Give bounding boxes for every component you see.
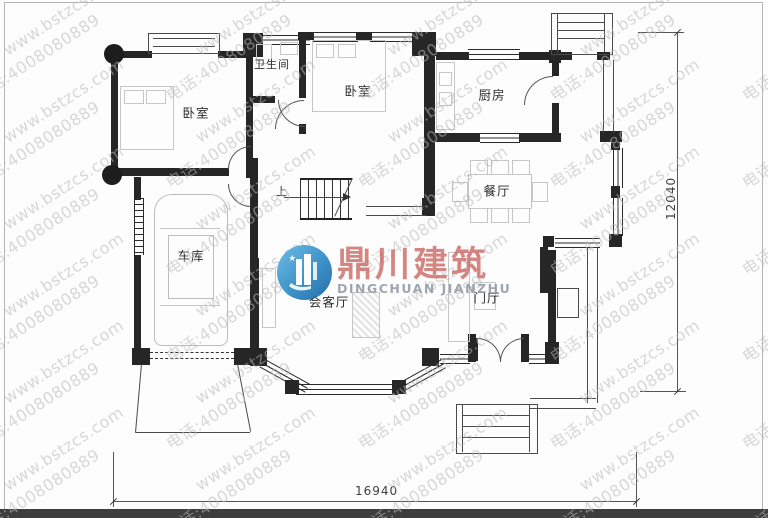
window (529, 354, 547, 364)
room-label-dining-room: 餐厅 (483, 181, 510, 200)
window (613, 148, 623, 188)
driveway-edge (136, 432, 250, 433)
wall-segment (519, 52, 551, 60)
room-label-kitchen: 厨房 (478, 85, 505, 104)
wall-segment (134, 255, 141, 350)
wall-segment (412, 32, 436, 56)
rear-steps-rail (604, 13, 605, 53)
round-column (104, 44, 124, 64)
dimension-value-height: 12040 (664, 180, 678, 220)
entry-step-line (462, 415, 530, 416)
wall-segment (111, 58, 118, 170)
entry-step-line (462, 437, 530, 438)
room-label-bedroom-1: 卧室 (182, 103, 209, 122)
door-swing-arc (500, 338, 524, 362)
floor-plan-image: 上 卧室 卫生间 卧室 厨房 餐厅 车库 会客厅 门厅 16940 12040 … (0, 0, 768, 518)
window (468, 49, 520, 60)
wall-segment (424, 54, 435, 142)
wall-segment (543, 236, 554, 247)
stove (439, 92, 452, 106)
entry-steps-rail (462, 404, 463, 452)
logo-name-chinese: 鼎川建筑 (337, 247, 511, 283)
pillow (146, 90, 166, 104)
wall-segment (545, 342, 559, 364)
chair (512, 208, 530, 223)
rear-step-line (557, 30, 605, 31)
car-windshield-line (160, 228, 220, 229)
stair-landing-edge (366, 206, 426, 216)
company-logo: 鼎川建筑 DINGCHUAN JIANZHU (277, 245, 511, 300)
entry-step-line (462, 426, 530, 427)
room-label-garage: 车库 (177, 246, 204, 265)
dimension-value-width: 16940 (355, 484, 398, 498)
foyer-niche (557, 288, 579, 318)
logo-buildings-icon (277, 245, 332, 300)
chair (470, 160, 488, 175)
bay-window-line (153, 38, 215, 39)
window (480, 133, 520, 143)
wall-segment (552, 60, 559, 76)
rear-step-line (557, 38, 605, 39)
rear-steps-rail (557, 13, 558, 53)
logo-globe-icon (277, 245, 332, 300)
door-swing-arc (228, 146, 251, 169)
thin-wall (603, 60, 614, 133)
dimension-line-bottom (113, 501, 637, 502)
room-label-bedroom-2: 卧室 (344, 81, 371, 100)
logo-text: 鼎川建筑 DINGCHUAN JIANZHU (337, 245, 511, 296)
pillow (338, 44, 356, 58)
entry-steps (456, 404, 538, 454)
terrace-edge (587, 247, 598, 403)
pillow (124, 90, 144, 104)
wall-segment (250, 177, 258, 350)
chair (491, 208, 509, 223)
logo-name-english: DINGCHUAN JIANZHU (337, 281, 511, 296)
bay-window-top (148, 33, 220, 54)
stair-arrow-head (343, 193, 351, 201)
bay-window-line (153, 46, 215, 47)
driveway-edge (135, 364, 142, 433)
door-swing-arc (228, 184, 251, 207)
chair (452, 182, 468, 202)
wall-segment (436, 52, 469, 60)
cabinet (262, 268, 276, 328)
wall-segment (112, 168, 229, 176)
bay-window-diagonal (396, 359, 446, 393)
door-swing-arc (477, 338, 501, 362)
wall-segment (132, 348, 150, 365)
garage-door-dashed (150, 352, 234, 354)
wall-segment (519, 133, 561, 142)
chair (491, 160, 509, 175)
chair (512, 160, 530, 175)
wall-segment (253, 96, 275, 103)
wall-segment (134, 177, 141, 200)
dimension-extension-line (640, 391, 686, 392)
sink (280, 42, 298, 55)
car-rear-line (160, 305, 220, 306)
wall-segment (540, 247, 548, 293)
rear-step-line (557, 22, 605, 23)
window (613, 198, 623, 236)
driveway-edge (237, 364, 251, 432)
louver-window (134, 198, 144, 255)
chair (532, 182, 548, 202)
window (440, 354, 470, 364)
entry-steps-rail (529, 404, 530, 452)
sink (439, 72, 452, 86)
wall-segment (299, 40, 306, 98)
round-column (102, 165, 122, 185)
door-swing-arc (524, 76, 553, 105)
stair-direction-arrow (284, 197, 346, 198)
garage-door-dashed (150, 358, 234, 360)
wall-segment (424, 142, 435, 202)
terrace-edge (530, 398, 596, 409)
room-label-bathroom: 卫生间 (254, 56, 290, 72)
stair-up-label: 上 (276, 183, 288, 199)
window (296, 384, 398, 395)
chair (470, 208, 488, 223)
pillow (316, 44, 334, 58)
wall-segment (424, 133, 480, 142)
